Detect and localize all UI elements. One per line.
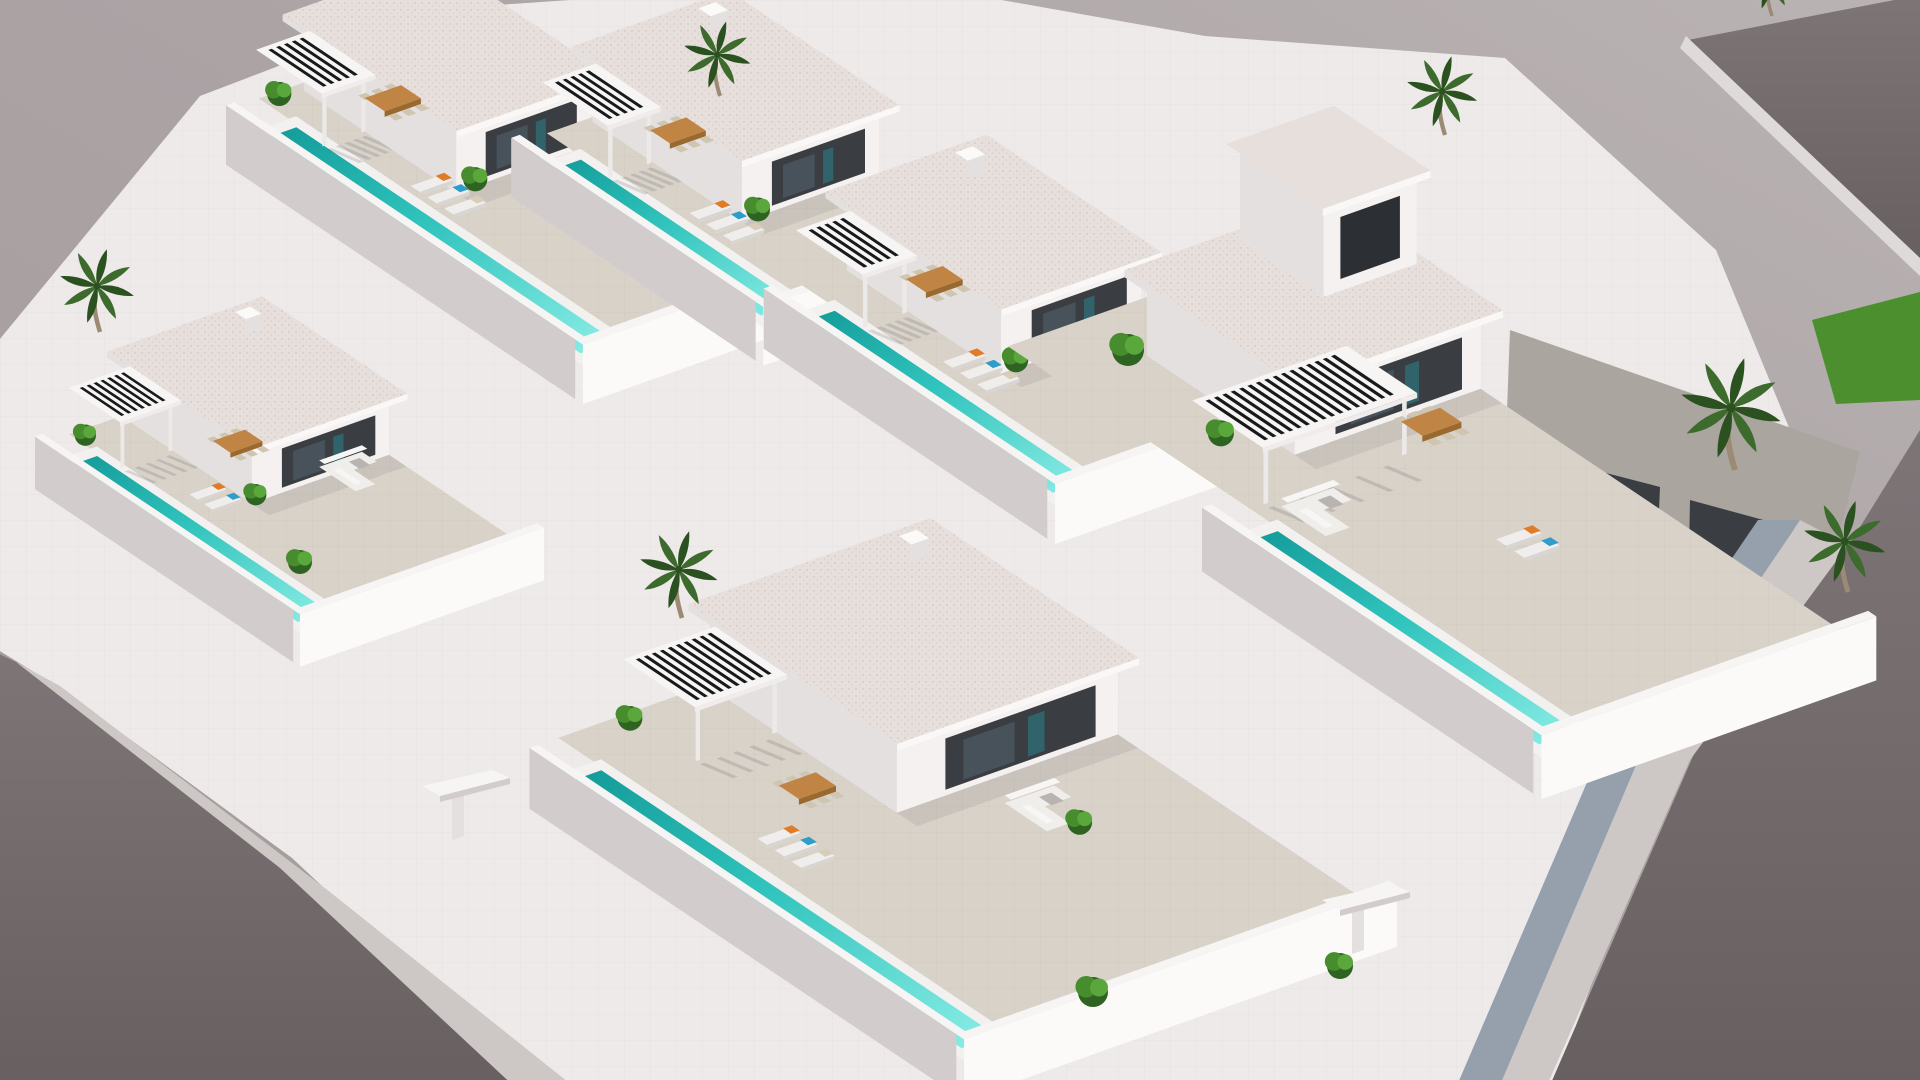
pergola-column bbox=[863, 272, 867, 328]
pergola-column bbox=[361, 77, 365, 132]
pergola-column bbox=[169, 403, 173, 452]
glass-reflection bbox=[823, 147, 833, 184]
pergola-column bbox=[647, 110, 651, 165]
villa-development-render bbox=[0, 0, 1920, 1080]
pergola-column bbox=[1402, 396, 1407, 456]
pergola-column bbox=[772, 677, 777, 734]
pergola-column bbox=[902, 258, 906, 314]
pergola-column bbox=[322, 91, 326, 146]
render-stage: Aerial 3D render of a modern white villa… bbox=[0, 0, 1920, 1080]
pergola-column bbox=[696, 705, 700, 762]
pergola-column bbox=[1264, 445, 1269, 505]
pergola-column bbox=[121, 420, 125, 469]
pergola-column bbox=[608, 123, 612, 178]
glass-reflection bbox=[1028, 711, 1045, 757]
